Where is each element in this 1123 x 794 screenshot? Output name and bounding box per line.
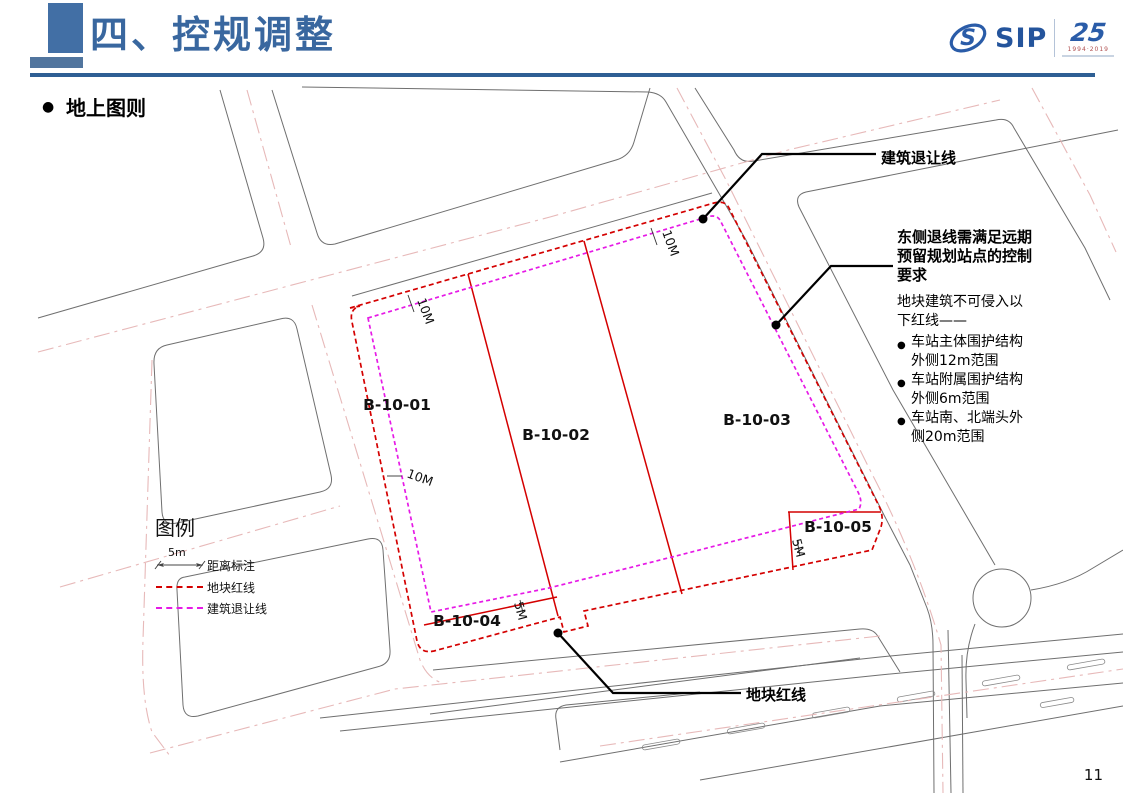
svg-text:S: S: [960, 26, 976, 51]
east-note-body: 地块建筑不可侵入以下红线——: [897, 293, 1035, 331]
section-title: 地上图则: [66, 92, 146, 121]
dim-label: 10M: [414, 296, 437, 326]
east-note-bullet: ●车站主体围护结构外侧12m范围: [897, 333, 1035, 371]
parcel-divisions: [424, 241, 881, 625]
plot-boundary-redline: [350, 202, 882, 651]
road-parcel-nw: [38, 90, 264, 318]
sip-logo: S SIP 25 1994·2019: [948, 14, 1114, 62]
road-parcel-w: [154, 318, 332, 523]
ramp-vertical-1: [948, 630, 951, 793]
expressway-4: [700, 706, 1123, 780]
anniversary-mark: 25 1994·2019: [1062, 20, 1114, 57]
east-note-bullet: ●车站附属围护结构外侧6m范围: [897, 371, 1035, 409]
bullet-text: 车站南、北端头外侧20m范围: [911, 409, 1035, 447]
logo-divider: [1054, 19, 1055, 57]
road-frontage-n: [352, 193, 712, 296]
legend-redline-sample: [156, 586, 203, 588]
dim-label: 10M: [405, 466, 435, 489]
legend-title: 图例: [155, 512, 195, 541]
road-south-1: [433, 629, 900, 672]
header-accent-bar: [30, 57, 83, 68]
dim-label: 10M: [659, 228, 682, 258]
legend-item-setback: 建筑退让线: [207, 600, 267, 617]
east-note-title: 东侧退线需满足远期预留规划站点的控制要求: [897, 228, 1035, 285]
ramp-arc-2: [966, 624, 975, 718]
bullet-text: 车站附属围护结构外侧6m范围: [911, 371, 1035, 409]
east-note-bullet: ●车站南、北端头外侧20m范围: [897, 409, 1035, 447]
section-bullet-icon: ●: [42, 99, 54, 115]
interchange-loop: [973, 569, 1031, 627]
ramp-arc-1: [1031, 550, 1123, 590]
sip-logo-text: SIP: [995, 23, 1047, 54]
redline-callout: 地块红线: [746, 684, 806, 705]
legend-item-distance: 距离标注: [207, 557, 255, 574]
expressway-2: [340, 652, 1123, 731]
lane-markings: [642, 659, 1105, 751]
road-parcel-n: [272, 88, 650, 245]
page-title: 四、控规调整: [90, 4, 336, 59]
bullet-text: 车站主体围护结构外侧12m范围: [911, 333, 1035, 371]
page-number: 11: [1084, 766, 1103, 784]
legend-setback-sample: [156, 607, 203, 609]
bullet-icon: ●: [897, 371, 911, 409]
legend-dimension-sample: [154, 558, 206, 572]
parcel-label: B-10-01: [363, 396, 431, 414]
header-accent-square: [48, 3, 83, 53]
bullet-icon: ●: [897, 409, 911, 447]
anniversary-25: 25: [1069, 20, 1107, 45]
parcel-label: B-10-05: [804, 518, 872, 536]
parcel-label: B-10-02: [522, 426, 590, 444]
parcel-labels: B-10-01 B-10-02 B-10-03 B-10-04 B-10-05: [363, 396, 872, 630]
east-note-bullets: ●车站主体围护结构外侧12m范围 ●车站附属围护结构外侧6m范围 ●车站南、北端…: [897, 333, 1035, 447]
parcel-label: B-10-03: [723, 411, 791, 429]
legend-item-redline: 地块红线: [207, 579, 255, 596]
header-rule: [30, 73, 1095, 77]
anniversary-underline: [1062, 55, 1114, 57]
road-east-edge: [302, 87, 934, 793]
east-setback-note: 东侧退线需满足远期预留规划站点的控制要求 地块建筑不可侵入以下红线—— ●车站主…: [897, 228, 1035, 447]
sip-swoosh-icon: S: [948, 18, 988, 58]
parcel-label: B-10-04: [433, 612, 501, 630]
anniversary-years: 1994·2019: [1068, 47, 1109, 53]
bullet-icon: ●: [897, 333, 911, 371]
ramp-vertical-2: [962, 655, 963, 793]
setback-line-callout: 建筑退让线: [881, 147, 956, 168]
